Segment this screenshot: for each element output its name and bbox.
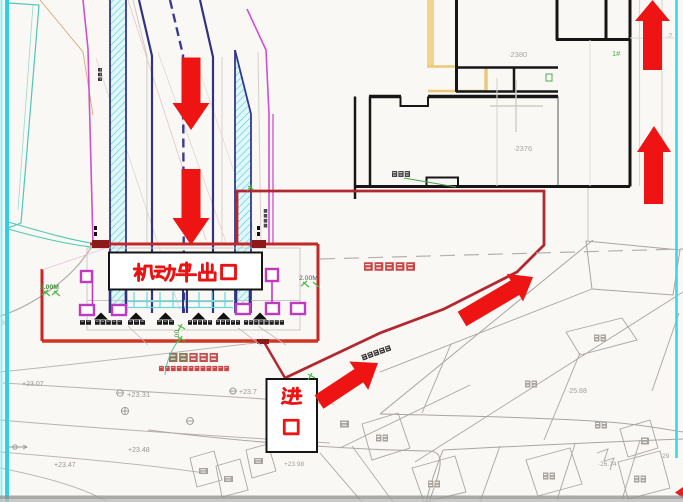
- svg-text:·2376: ·2376: [513, 144, 532, 153]
- svg-text:+23.31: +23.31: [127, 390, 150, 399]
- svg-text:+23.48: +23.48: [128, 447, 150, 454]
- svg-text:·25.88: ·25.88: [567, 388, 587, 395]
- svg-text:·2380: ·2380: [508, 50, 527, 59]
- svg-text:2.00M: 2.00M: [299, 275, 318, 282]
- svg-text:·2: ·2: [666, 33, 672, 40]
- svg-text:2.00M: 2.00M: [40, 284, 59, 291]
- svg-text:+23.07: +23.07: [22, 381, 44, 388]
- svg-text:+23.98: +23.98: [284, 461, 304, 468]
- svg-text:+23.7: +23.7: [239, 389, 257, 396]
- svg-text:1#: 1#: [612, 49, 621, 58]
- svg-text:·26.74: ·26.74: [598, 461, 617, 468]
- svg-text:+23.47: +23.47: [54, 462, 76, 469]
- svg-text:·29: ·29: [660, 453, 670, 460]
